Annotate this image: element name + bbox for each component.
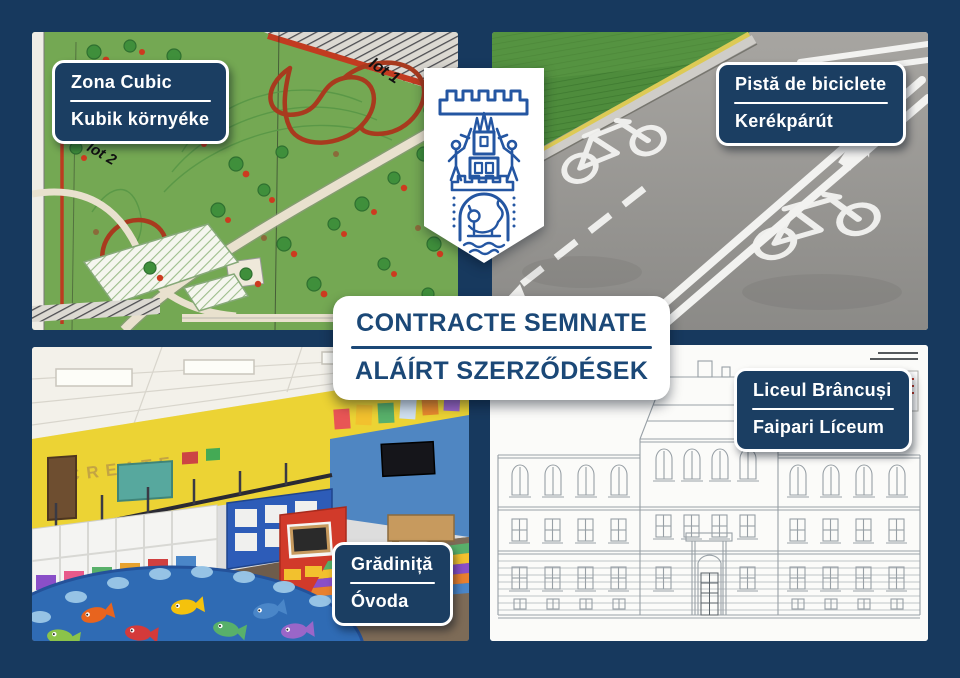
label-kindergarten: Grădiniță Óvoda: [332, 542, 453, 626]
classroom-door: [48, 456, 76, 520]
label-school: Liceul Brâncuși Faipari Líceum: [734, 368, 912, 452]
label-cubic-ro: Zona Cubic: [70, 70, 211, 100]
label-school-hu: Faipari Líceum: [752, 410, 894, 440]
label-cubic-hu: Kubik környéke: [70, 102, 211, 132]
crest-pennant: [424, 68, 544, 266]
label-school-ro: Liceul Brâncuși: [752, 378, 894, 408]
banner-line-hu: ALÁÍRT SZERZŐDÉSEK: [351, 349, 652, 388]
label-bike-hu: Kerékpárút: [734, 104, 888, 134]
contracts-poster: lot 1 lot 2: [0, 0, 960, 678]
bulletin-board: [118, 461, 172, 501]
tv-screen: [381, 442, 435, 477]
label-bike-path: Pistă de biciclete Kerékpárút: [716, 62, 906, 146]
banner-line-ro: CONTRACTE SEMNATE: [351, 307, 652, 346]
label-cubic-zone: Zona Cubic Kubik környéke: [52, 60, 229, 144]
label-kg-ro: Grădiniță: [350, 552, 435, 582]
label-kg-hu: Óvoda: [350, 584, 435, 614]
coat-of-arms-icon: [424, 68, 544, 266]
title-banner: CONTRACTE SEMNATE ALÁÍRT SZERZŐDÉSEK: [333, 296, 670, 400]
label-bike-ro: Pistă de biciclete: [734, 72, 888, 102]
